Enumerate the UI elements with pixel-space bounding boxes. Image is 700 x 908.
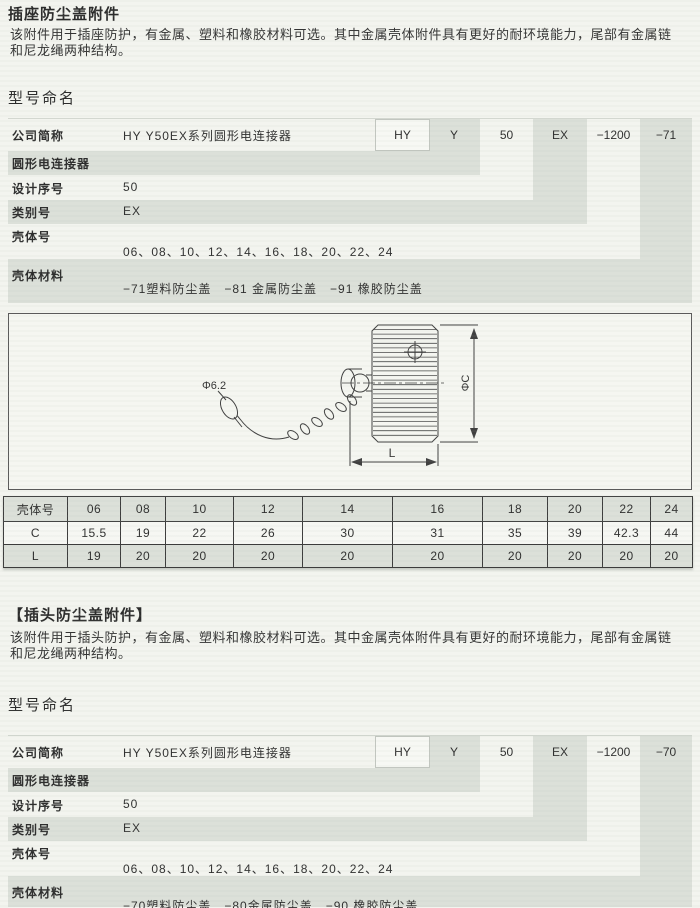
dim-header-cell: 16: [393, 497, 483, 522]
naming-row-label: 壳体材料: [12, 267, 64, 284]
naming-row-label: 类别号: [12, 204, 51, 221]
dim-header-cell: 24: [651, 497, 693, 522]
naming-row-label: 圆形电连接器: [12, 772, 90, 789]
dim-value-cell: 20: [234, 545, 303, 568]
section-1-naming-heading: 型号命名: [8, 87, 76, 108]
dust-cap-body: [372, 325, 438, 442]
naming-row: 壳体号 06、08、10、12、14、16、18、20、22、24: [8, 841, 692, 876]
dim-header-cell: 08: [121, 497, 166, 522]
dim-value-cell: 15.5: [68, 522, 121, 545]
dim-value-cell: 35: [483, 522, 548, 545]
naming-row-value: 50: [123, 180, 138, 194]
naming-row-label: 公司简称: [12, 744, 64, 761]
dim-row-label: C: [4, 522, 68, 545]
naming-row-value: 50: [123, 797, 138, 811]
dim-value-cell: 26: [234, 522, 303, 545]
naming-row-value: −71塑料防尘盖 −81 金属防尘盖 −91 橡胶防尘盖: [123, 280, 423, 297]
naming-row-label: 类别号: [12, 821, 51, 838]
naming-table-1: HY Y 50 EX −1200 −71 公司简称 HY Y50EX系列圆形电连…: [8, 118, 692, 303]
dim-corner-cell: 壳体号: [4, 497, 68, 522]
naming-row-label: 设计序号: [12, 797, 64, 814]
naming-row-value: −70塑料防尘盖 −80金属防尘盖 −90 橡胶防尘盖: [123, 897, 418, 908]
naming-row-value: HY Y50EX系列圆形电连接器: [123, 744, 292, 761]
dim-header-cell: 12: [234, 497, 303, 522]
dim-header-cell: 20: [548, 497, 603, 522]
dim-header-cell: 18: [483, 497, 548, 522]
naming-row-value: 06、08、10、12、14、16、18、20、22、24: [123, 860, 393, 877]
dim-value-cell: 20: [166, 545, 234, 568]
naming-row: 壳体材料 −71塑料防尘盖 −81 金属防尘盖 −91 橡胶防尘盖: [8, 259, 692, 303]
naming-row-value: HY Y50EX系列圆形电连接器: [123, 127, 292, 144]
dim-value-cell: 20: [121, 545, 166, 568]
naming-row: 公司简称 HY Y50EX系列圆形电连接器: [8, 736, 692, 768]
naming-row-value: EX: [123, 821, 141, 835]
naming-row: 公司简称 HY Y50EX系列圆形电连接器: [8, 119, 692, 151]
technical-drawing: Φ6.2 ΦC L: [8, 313, 692, 490]
dim-value-cell: 19: [121, 522, 166, 545]
dim-row-label: L: [4, 545, 68, 568]
naming-row-label: 公司简称: [12, 127, 64, 144]
dim-value-cell: 30: [303, 522, 393, 545]
naming-row: 类别号 EX: [8, 817, 692, 841]
dim-header-cell: 10: [166, 497, 234, 522]
dim-value-cell: 39: [548, 522, 603, 545]
naming-row-label: 壳体号: [12, 845, 51, 862]
section-1-title: 插座防尘盖附件: [8, 3, 120, 24]
dia-dim-label: ΦC: [460, 375, 472, 392]
dim-value-cell: 20: [603, 545, 651, 568]
dim-value-cell: 19: [68, 545, 121, 568]
naming-row-value: EX: [123, 204, 141, 218]
naming-row: 壳体材料 −70塑料防尘盖 −80金属防尘盖 −90 橡胶防尘盖: [8, 876, 692, 908]
dim-value-cell: 20: [651, 545, 693, 568]
dim-value-cell: 22: [166, 522, 234, 545]
length-dim-label: L: [389, 446, 396, 460]
dim-value-cell: 20: [303, 545, 393, 568]
naming-row-label: 设计序号: [12, 180, 64, 197]
naming-table-2: HY Y 50 EX −1200 −70 公司简称 HY Y50EX系列圆形电连…: [8, 735, 692, 907]
dim-value-cell: 20: [393, 545, 483, 568]
dim-header-cell: 14: [303, 497, 393, 522]
section-2-description: 该附件用于插头防护，有金属、塑料和橡胶材料可选。其中金属壳体附件具有更好的耐环境…: [10, 630, 678, 662]
naming-row: 壳体号 06、08、10、12、14、16、18、20、22、24: [8, 224, 692, 259]
dim-header-cell: 22: [603, 497, 651, 522]
section-2-title: 【插头防尘盖附件】: [8, 604, 152, 625]
naming-row-label: 壳体号: [12, 228, 51, 245]
naming-row: 设计序号 50: [8, 175, 692, 200]
dim-value-cell: 20: [483, 545, 548, 568]
dim-value-cell: 42.3: [603, 522, 651, 545]
dim-header-cell: 06: [68, 497, 121, 522]
section-2-naming-heading: 型号命名: [8, 694, 76, 715]
naming-row: 圆形电连接器: [8, 768, 692, 792]
naming-row-label: 壳体材料: [12, 884, 64, 901]
dimension-table: 壳体号06081012141618202224C15.5192226303135…: [3, 496, 693, 568]
naming-row: 圆形电连接器: [8, 151, 692, 175]
dim-value-cell: 31: [393, 522, 483, 545]
dim-value-cell: 20: [548, 545, 603, 568]
datasheet-page: 插座防尘盖附件 该附件用于插座防护，有金属、塑料和橡胶材料可选。其中金属壳体附件…: [0, 0, 700, 908]
dim-value-cell: 44: [651, 522, 693, 545]
hole-dia-label: Φ6.2: [202, 380, 226, 392]
section-1-description: 该附件用于插座防护，有金属、塑料和橡胶材料可选。其中金属壳体附件具有更好的耐环境…: [10, 27, 678, 59]
naming-row: 设计序号 50: [8, 792, 692, 817]
naming-row: 类别号 EX: [8, 200, 692, 224]
naming-row-label: 圆形电连接器: [12, 155, 90, 172]
naming-row-value: 06、08、10、12、14、16、18、20、22、24: [123, 243, 393, 260]
